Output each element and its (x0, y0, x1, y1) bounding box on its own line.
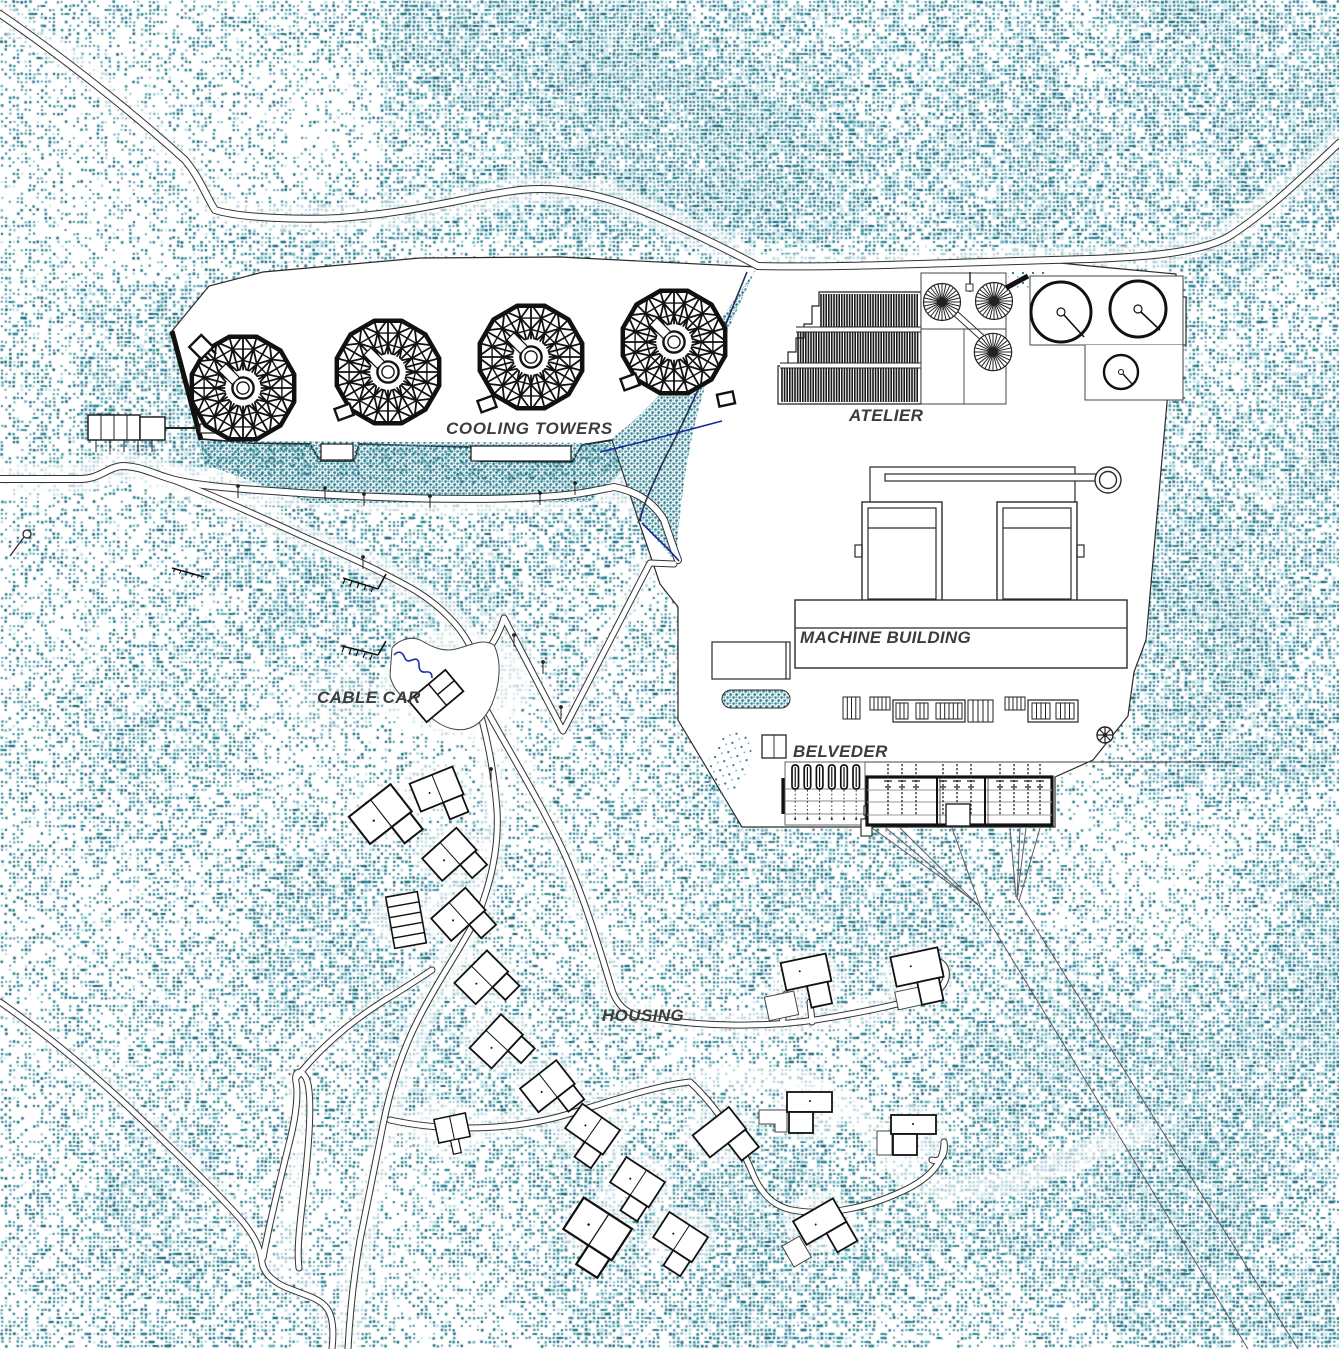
svg-text:ATELIER: ATELIER (848, 406, 924, 425)
svg-text:HOUSING: HOUSING (602, 1006, 684, 1025)
svg-text:MACHINE BUILDING: MACHINE BUILDING (800, 628, 971, 647)
svg-text:BELVEDER: BELVEDER (793, 742, 888, 761)
svg-text:COOLING TOWERS: COOLING TOWERS (446, 419, 613, 438)
svg-text:CABLE CAR: CABLE CAR (317, 688, 421, 707)
